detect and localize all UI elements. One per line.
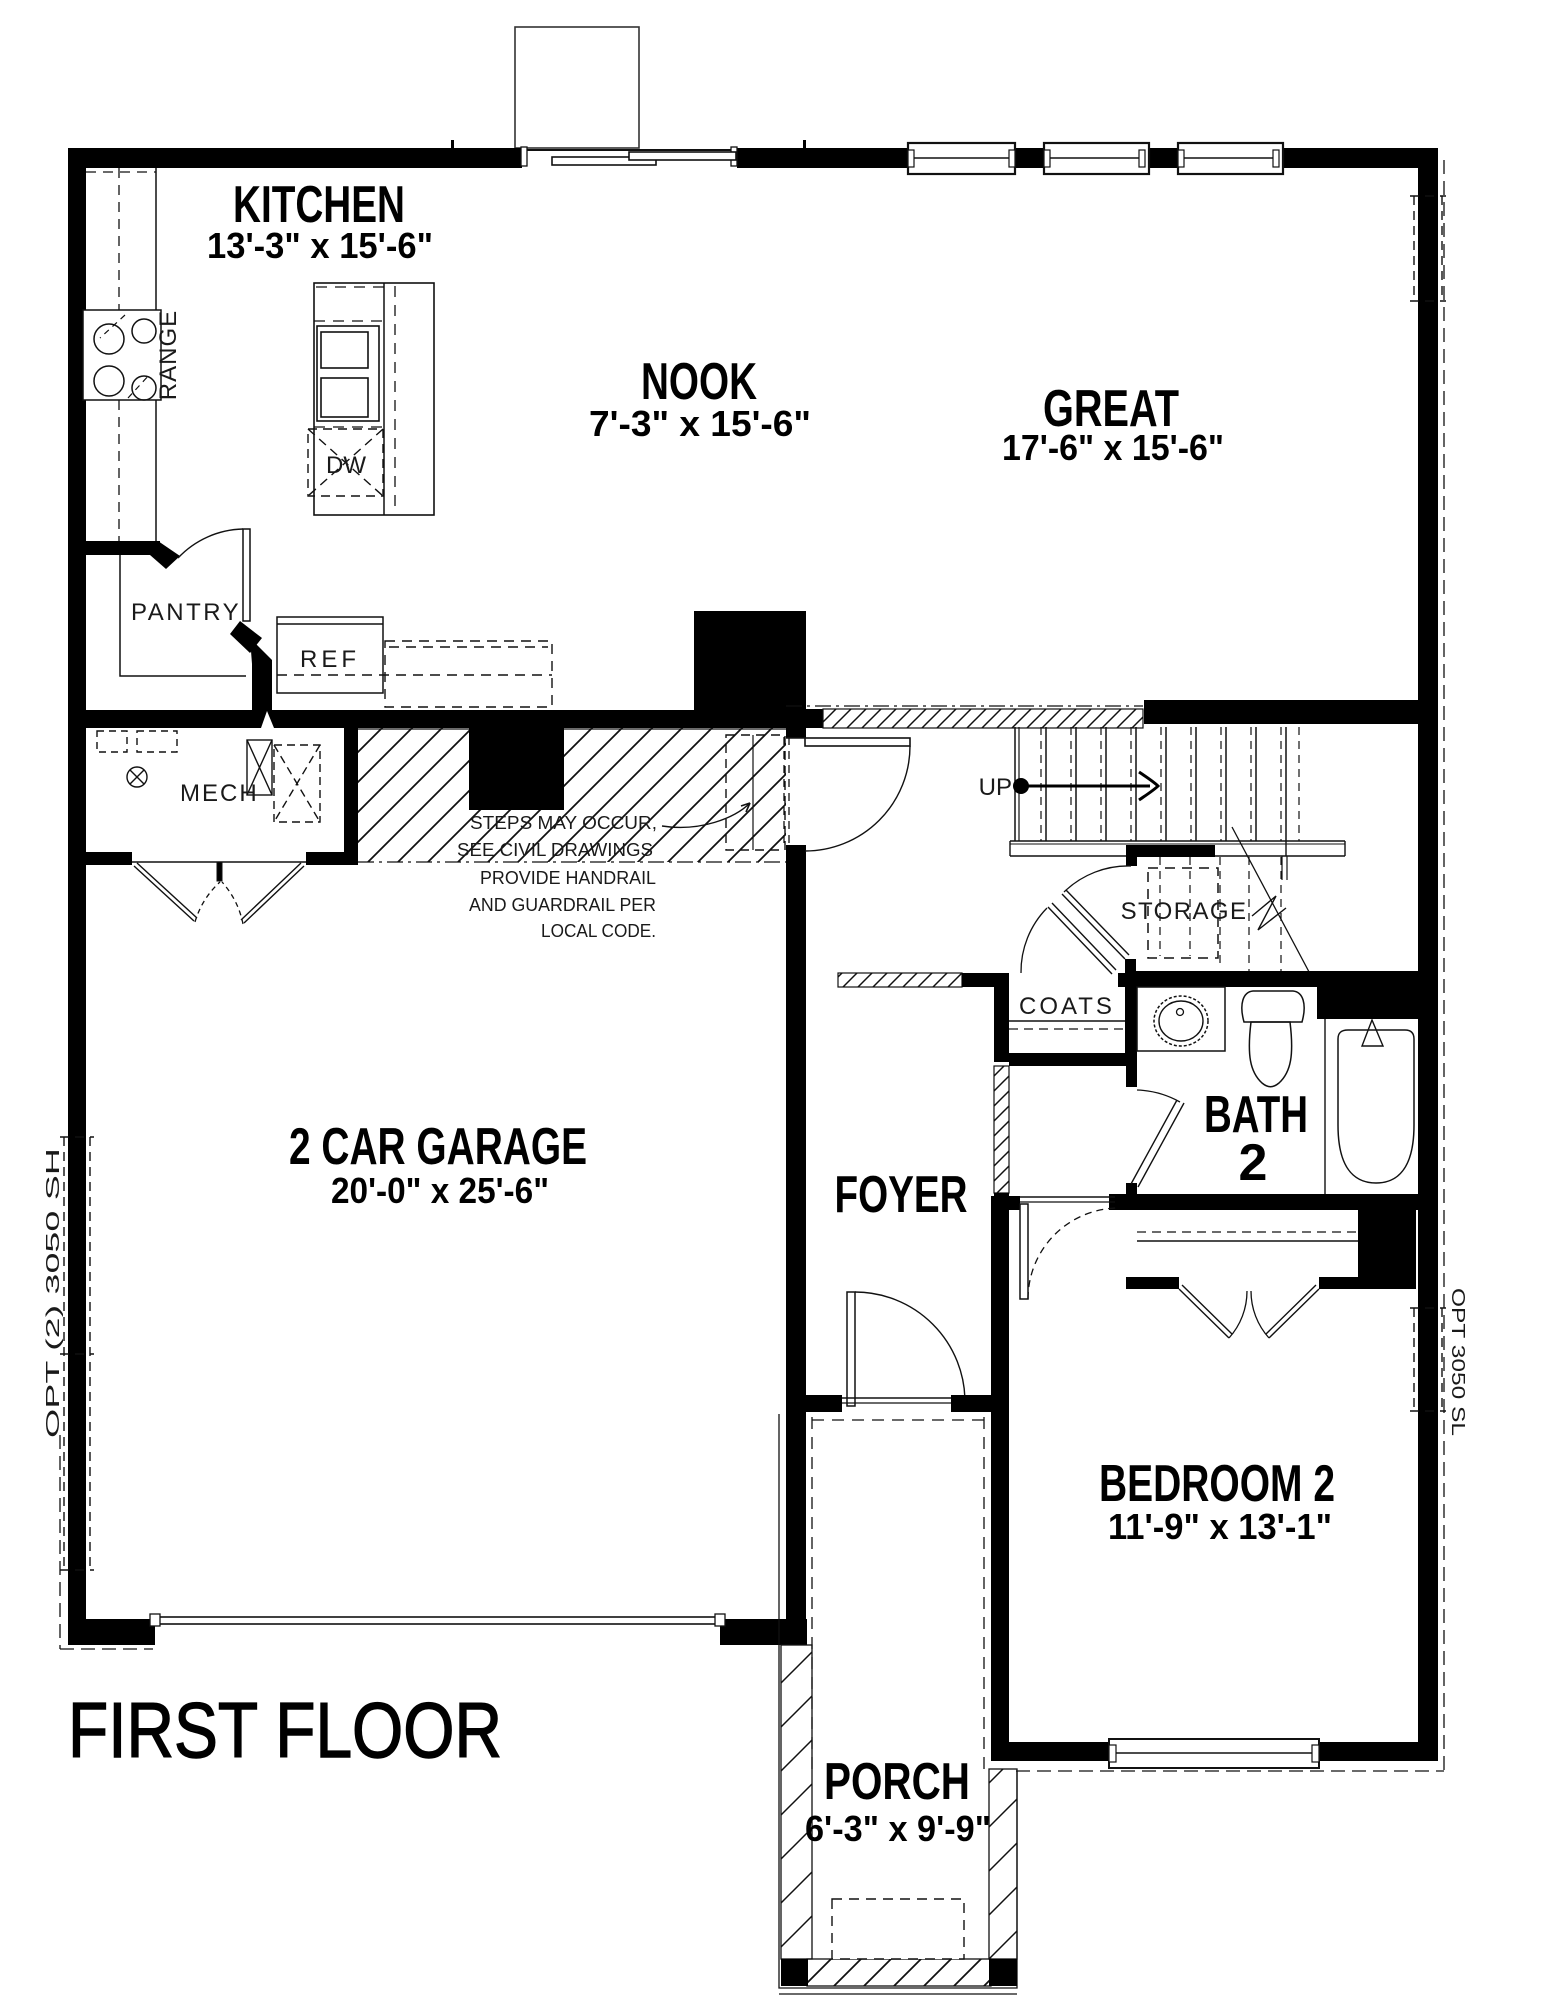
- svg-text:AND GUARDRAIL PER: AND GUARDRAIL PER: [469, 895, 656, 915]
- svg-text:FOYER: FOYER: [835, 1166, 968, 1224]
- svg-text:6'-3" x 9'-9": 6'-3" x 9'-9": [805, 1808, 991, 1849]
- svg-text:STORAGE: STORAGE: [1121, 898, 1248, 925]
- svg-text:UP: UP: [979, 774, 1012, 801]
- svg-text:FIRST FLOOR: FIRST FLOOR: [68, 1686, 502, 1774]
- svg-text:11'-9" x 13'-1": 11'-9" x 13'-1": [1108, 1506, 1332, 1547]
- svg-text:STEPS MAY OCCUR,: STEPS MAY OCCUR,: [470, 813, 657, 833]
- svg-text:20'-0" x 25'-6": 20'-0" x 25'-6": [331, 1170, 549, 1211]
- svg-text:COATS: COATS: [1019, 993, 1115, 1020]
- svg-text:2: 2: [1239, 1134, 1268, 1192]
- svg-text:PANTRY: PANTRY: [131, 599, 241, 626]
- svg-text:PROVIDE HANDRAIL: PROVIDE HANDRAIL: [480, 868, 656, 888]
- svg-text:LOCAL CODE.: LOCAL CODE.: [541, 921, 656, 941]
- svg-text:REF: REF: [300, 646, 360, 673]
- svg-text:SEE CIVIL DRAWINGS: SEE CIVIL DRAWINGS: [457, 840, 653, 860]
- svg-text:DW: DW: [326, 452, 366, 479]
- svg-text:13'-3" x 15'-6": 13'-3" x 15'-6": [207, 225, 433, 266]
- svg-text:BEDROOM 2: BEDROOM 2: [1099, 1455, 1335, 1513]
- svg-text:OPT (2) 3050 SH: OPT (2) 3050 SH: [43, 1148, 63, 1438]
- svg-text:7'-3" x 15'-6": 7'-3" x 15'-6": [589, 403, 811, 444]
- svg-text:PORCH: PORCH: [824, 1753, 970, 1811]
- svg-text:MECH: MECH: [180, 780, 259, 807]
- svg-text:17'-6" x 15'-6": 17'-6" x 15'-6": [1002, 427, 1224, 468]
- svg-text:2 CAR GARAGE: 2 CAR GARAGE: [289, 1118, 587, 1176]
- svg-text:OPT 3050 SL: OPT 3050 SL: [1448, 1288, 1468, 1436]
- svg-text:RANGE: RANGE: [155, 310, 182, 400]
